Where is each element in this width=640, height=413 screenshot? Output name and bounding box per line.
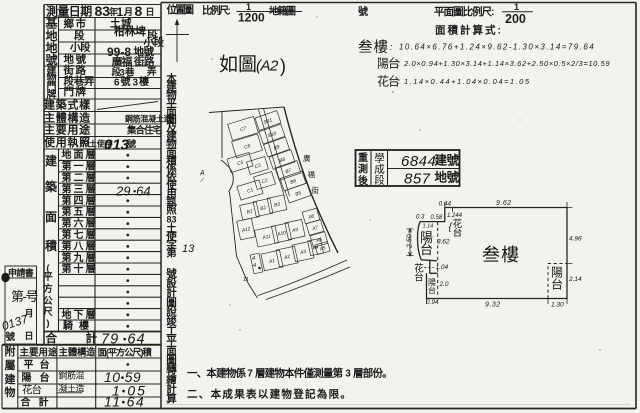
- svg-text:第十層: 第十層: [62, 262, 98, 275]
- svg-text:建物門牌: 建物門牌: [46, 64, 58, 101]
- svg-text:0.94: 0.94: [426, 299, 439, 306]
- svg-text:1.14×0.44+1.04×0.04=1.05: 1.14×0.44+1.04×0.04=1.05: [404, 77, 531, 86]
- svg-text:A: A: [199, 170, 205, 177]
- svg-text:基地地號: 基地地號: [44, 16, 58, 68]
- svg-text:第八層: 第八層: [62, 239, 98, 252]
- svg-text:樓: 樓: [139, 75, 149, 88]
- svg-text:月: 月: [123, 7, 133, 17]
- svg-text:面(平方公尺)積: 面(平方公尺)積: [98, 347, 153, 358]
- svg-text:第六層: 第六層: [62, 217, 98, 230]
- svg-text:陽台: 陽台: [420, 230, 433, 257]
- svg-text:4: 4: [252, 256, 255, 262]
- svg-text:平: 平: [24, 359, 34, 371]
- svg-text:4: 4: [253, 263, 256, 269]
- svg-text:鋼筋混凝土造: 鋼筋混凝土造: [124, 114, 171, 124]
- svg-text:合: 合: [46, 331, 58, 345]
- svg-text:附屬建物: 附屬建物: [5, 344, 17, 399]
- svg-text:二、本成果表以建物登記為限。: 二、本成果表以建物登記為限。: [187, 388, 352, 401]
- svg-text:申請書: 申請書: [8, 267, 34, 278]
- svg-text:13: 13: [182, 243, 195, 255]
- svg-text:79 •64: 79 •64: [101, 332, 146, 348]
- svg-text:第二層: 第二層: [62, 171, 98, 184]
- svg-text:門牌: 門牌: [64, 85, 88, 98]
- svg-text:號設計圖說竣工平面圖轉繪計算: 號設計圖說竣工平面圖轉繪計算: [166, 267, 177, 405]
- svg-text:1.30: 1.30: [551, 302, 564, 309]
- svg-text:主要用途: 主要用途: [44, 123, 91, 137]
- svg-text:廣福: 廣福: [112, 55, 133, 69]
- svg-text:第五層: 第五層: [62, 205, 98, 218]
- svg-text:計: 計: [39, 396, 49, 409]
- svg-text:第九層: 第九層: [62, 251, 98, 264]
- svg-text:主體構造: 主體構造: [59, 347, 97, 359]
- svg-text:凝土造: 凝土造: [59, 383, 85, 394]
- svg-text:3: 3: [133, 78, 139, 89]
- svg-text:花台: 花台: [22, 383, 41, 396]
- svg-text:主要用途: 主要用途: [20, 347, 59, 359]
- svg-text:1.14: 1.14: [423, 224, 434, 230]
- svg-text:合: 合: [20, 396, 32, 409]
- svg-text:29 •64: 29 •64: [115, 184, 151, 199]
- svg-text:比例尺:: 比例尺:: [202, 4, 230, 17]
- svg-text:位置圖: 位置圖: [167, 3, 194, 16]
- svg-text:0.58: 0.58: [431, 215, 443, 221]
- svg-text:1.04: 1.04: [436, 264, 449, 271]
- svg-text:小段: 小段: [69, 41, 91, 54]
- svg-text::: :: [398, 59, 400, 68]
- svg-text:陽: 陽: [22, 372, 32, 384]
- svg-text:號: 號: [358, 5, 368, 18]
- svg-text:重測後: 重測後: [358, 151, 369, 187]
- svg-text:叁樓: 叁樓: [482, 245, 520, 265]
- svg-text:台: 台: [40, 371, 50, 384]
- svg-text:地號: 地號: [435, 170, 460, 185]
- svg-text:陽台: 陽台: [377, 56, 400, 71]
- svg-text:地下層: 地下層: [62, 308, 98, 321]
- svg-text:叁樓: 叁樓: [358, 39, 389, 56]
- svg-text:9.32: 9.32: [485, 302, 501, 309]
- svg-text:(A2: (A2: [256, 58, 279, 75]
- svg-text:台: 台: [40, 358, 50, 371]
- svg-text:本建物平面圖及建物面積係依使用執照83土使字第: 本建物平面圖及建物面積係依使用執照83土使字第: [165, 72, 177, 259]
- svg-text:花台: 花台: [414, 263, 424, 284]
- svg-text:號: 號: [127, 138, 136, 149]
- svg-text:3.62: 3.62: [437, 239, 450, 246]
- svg-text:地籍圖: 地籍圖: [269, 5, 296, 18]
- svg-text:1200: 1200: [238, 11, 265, 25]
- svg-text:柑林埤: 柑林埤: [114, 24, 146, 38]
- svg-text:2.14: 2.14: [568, 276, 582, 283]
- svg-text:建築式樣: 建築式樣: [44, 98, 91, 112]
- svg-text:6: 6: [114, 78, 120, 89]
- svg-text:建號: 建號: [435, 153, 460, 168]
- svg-text:2.0×0.94+1.30×3.14+1.14×3.62+2: 2.0×0.94+1.30×3.14+1.14×3.62+2.50×0.5×2/…: [403, 59, 610, 68]
- svg-text:號: 號: [121, 75, 131, 88]
- svg-text:計: 計: [86, 331, 98, 345]
- svg-text:集合住宅: 集合住宅: [126, 125, 163, 137]
- svg-text:第三層: 第三層: [62, 182, 98, 195]
- svg-text:4.96: 4.96: [569, 236, 582, 243]
- svg-text:號: 號: [6, 331, 16, 343]
- svg-text:日: 日: [25, 331, 34, 341]
- svg-text:地面層: 地面層: [62, 148, 98, 161]
- svg-text:0.3: 0.3: [416, 215, 425, 221]
- svg-text:第-号: 第-号: [11, 289, 38, 304]
- svg-text:1: 1: [514, 2, 519, 12]
- svg-text:學成段: 學成段: [374, 152, 385, 187]
- svg-text:段: 段: [74, 29, 85, 42]
- svg-text:第七層: 第七層: [62, 228, 98, 241]
- svg-text:陽台: 陽台: [551, 266, 563, 292]
- svg-text:6844: 6844: [401, 153, 436, 170]
- svg-text:第四層: 第四層: [62, 194, 98, 207]
- svg-text::: :: [398, 77, 400, 86]
- svg-text:鋼筋混: 鋼筋混: [59, 370, 85, 381]
- svg-text:一、本建物係7層建物本件僅測量第3層部份。: 一、本建物係7層建物本件僅測量第3層部份。: [187, 367, 392, 380]
- svg-text:花台: 花台: [377, 74, 400, 89]
- svg-text:0.44: 0.44: [439, 201, 452, 208]
- svg-text:11: 11: [243, 277, 249, 283]
- svg-text:日: 日: [146, 7, 155, 17]
- svg-text:第一層: 第一層: [62, 160, 98, 173]
- svg-text:主體構造: 主體構造: [44, 111, 91, 125]
- svg-text:平面圖比例尺:: 平面圖比例尺:: [434, 5, 494, 18]
- svg-text:花台: 花台: [453, 218, 463, 239]
- svg-text:2.0: 2.0: [439, 281, 449, 288]
- svg-text:8: 8: [135, 3, 143, 19]
- svg-text:如圖: 如圖: [219, 54, 257, 76]
- svg-text:2.50: 2.50: [407, 234, 414, 249]
- svg-text:鄉市: 鄉市: [64, 17, 88, 30]
- svg-text:10.64×6.76+1.24×9.62-1.30×3.14: 10.64×6.76+1.24×9.62-1.30×3.14=79.64: [399, 43, 595, 52]
- svg-text:陽台: 陽台: [428, 278, 436, 295]
- svg-text:): ): [280, 56, 286, 76]
- svg-text:騎樓: 騎樓: [63, 319, 95, 332]
- svg-text:013: 013: [104, 137, 130, 154]
- svg-text:857: 857: [404, 171, 431, 188]
- svg-text:面積計算式:: 面積計算式:: [435, 24, 503, 37]
- svg-text:200: 200: [505, 12, 526, 26]
- svg-text:9.62: 9.62: [496, 200, 512, 207]
